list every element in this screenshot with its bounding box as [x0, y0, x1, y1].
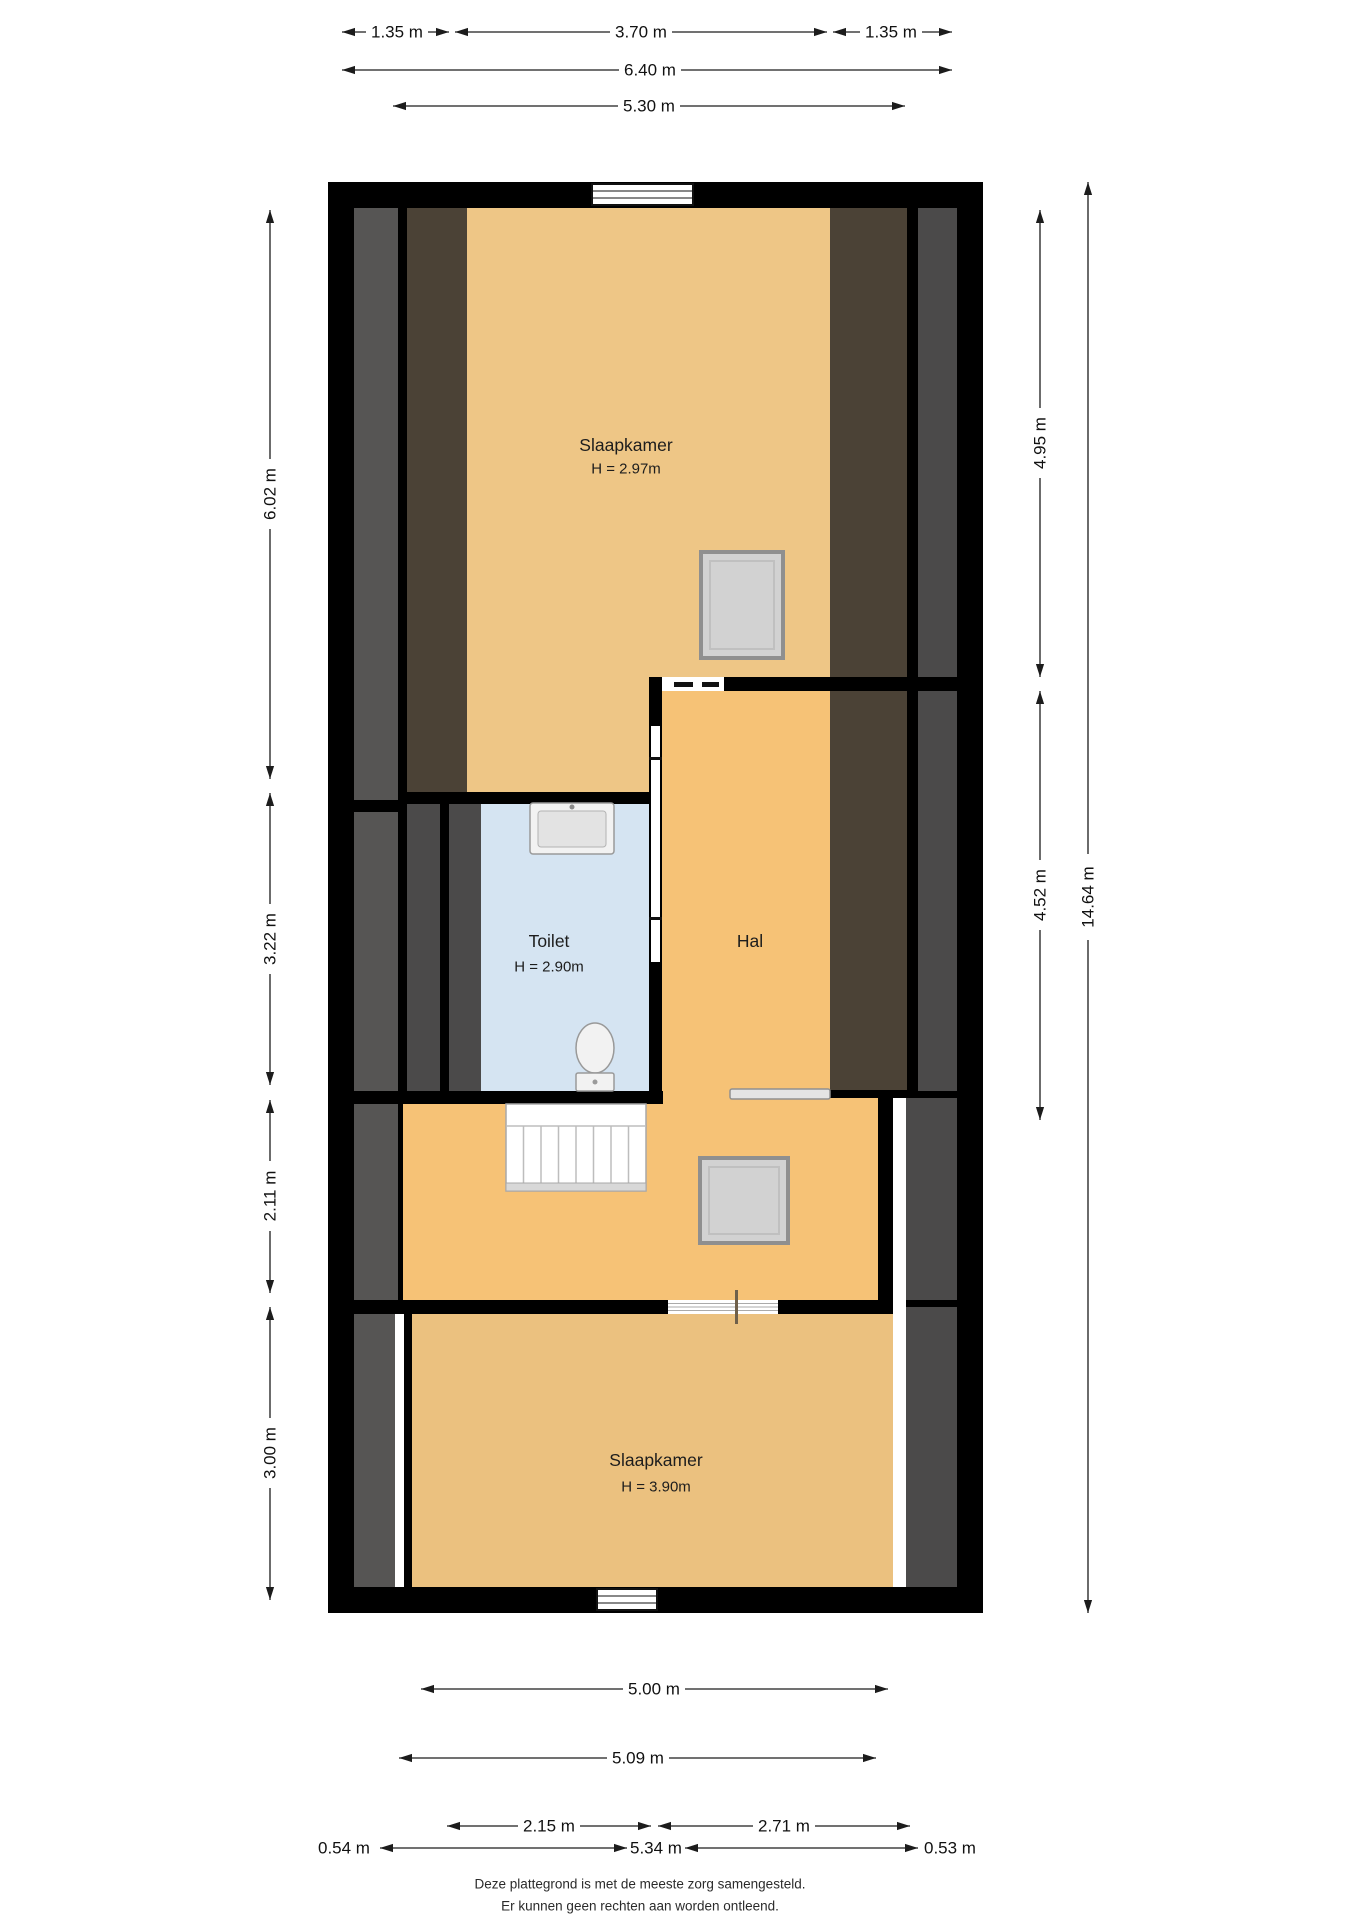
roof-slope-right-up-2	[918, 691, 957, 1091]
sink-tap	[570, 805, 575, 810]
partition-window-tick-1	[649, 757, 662, 760]
floor-plan-canvas: Slaapkamer H = 2.97m Toilet H = 2.90m Ha…	[0, 0, 1358, 1920]
toilet-fixture	[576, 1023, 614, 1091]
window-top-frame	[592, 184, 693, 205]
knee-wall-window-strip-left	[395, 1314, 404, 1587]
bedroom-bottom-height-label: H = 3.90m	[621, 1479, 691, 1496]
dim-left-landing-zone: 2.11 m	[261, 1171, 280, 1222]
dim-top-right-segment: 1.35 m	[865, 23, 917, 42]
dim-top-inner-width: 5.30 m	[623, 97, 675, 116]
dim-left-bedroom-bottom: 3.00 m	[261, 1427, 280, 1479]
passage-dash-2	[702, 682, 719, 687]
dim-bottom-left-offset: 0.54 m	[318, 1839, 370, 1858]
bedroom-top-floor-lobe	[467, 677, 649, 792]
dim-right-hall: 4.52 m	[1031, 869, 1050, 921]
dim-top-total-width: 6.40 m	[624, 61, 676, 80]
partition-window-band	[651, 726, 660, 962]
disclaimer-line-1: Deze plattegrond is met de meeste zorg s…	[475, 1877, 806, 1892]
floor-plan-page: Slaapkamer H = 2.97m Toilet H = 2.90m Ha…	[0, 0, 1358, 1920]
dim-bottom-right-split: 2.71 m	[758, 1817, 810, 1836]
roof-slope-left-1	[354, 208, 398, 800]
bedroom-bottom-label: Slaapkamer	[609, 1450, 703, 1470]
roof-slope-right-low-1	[906, 1098, 957, 1300]
hall-label: Hal	[737, 931, 763, 951]
dim-left-toilet-zone: 3.22 m	[261, 913, 280, 965]
dim-top-row3: 5.30 m	[393, 96, 905, 116]
dim-right-bedroom-top: 4.95 m	[1031, 417, 1050, 469]
toilet-bowl	[576, 1023, 614, 1073]
dim-bottom-right-offset: 0.53 m	[924, 1839, 976, 1858]
stairs	[506, 1104, 646, 1191]
roof-slope-brown-right-1	[830, 208, 907, 677]
skylight-landing	[700, 1158, 788, 1243]
dim-bottom-rows: 5.00 m 5.09 m 2.15 m 2.71 m 0.54 m 5.34 …	[318, 1679, 976, 1858]
hall-floor	[662, 691, 830, 1091]
dim-bottom-outer-width: 5.34 m	[630, 1839, 682, 1858]
dim-left-column: 6.02 m 3.22 m 2.11 m 3.00 m	[260, 210, 280, 1600]
slope-corridor-left	[407, 804, 440, 1091]
dim-bottom-room-width: 5.00 m	[628, 1680, 680, 1699]
dim-left-bedroom-top: 6.02 m	[261, 468, 280, 520]
skylight-bedroom-top	[701, 552, 783, 658]
roof-slope-brown-right-2	[830, 691, 907, 1090]
dim-top-left-segment: 1.35 m	[371, 23, 423, 42]
stair-railing	[730, 1089, 830, 1099]
toilet-button	[593, 1080, 598, 1085]
window-bottom	[597, 1589, 657, 1610]
roof-slope-left-2	[354, 812, 398, 1091]
roof-slope-left-3	[354, 1104, 398, 1300]
roof-slope-right-low-2	[906, 1307, 957, 1587]
bedroom-top-height-label: H = 2.97m	[591, 461, 661, 478]
dim-bottom-inner-width: 5.09 m	[612, 1749, 664, 1768]
open-passage-dashed	[662, 677, 724, 691]
passage-dash-1	[674, 682, 693, 687]
sink-bowl	[538, 811, 606, 847]
toilet-slope-area	[449, 804, 481, 1091]
knee-wall-window-strip-right	[893, 1098, 906, 1587]
stairs-bottom-lip	[506, 1183, 646, 1191]
partition-window-tick-2	[649, 917, 662, 920]
bedroom-top-label: Slaapkamer	[579, 435, 673, 455]
toilet-label: Toilet	[529, 931, 570, 951]
roof-slope-left-4	[354, 1314, 395, 1587]
dim-right-total-height: 14.64 m	[1079, 866, 1098, 927]
skylight-top-frame	[701, 552, 783, 658]
dim-top-row2: 6.40 m	[342, 60, 952, 80]
dim-top-row1: 1.35 m 3.70 m 1.35 m	[342, 22, 952, 42]
window-bottom-frame	[597, 1589, 657, 1610]
plan: Slaapkamer H = 2.97m Toilet H = 2.90m Ha…	[328, 182, 983, 1613]
window-top	[592, 184, 693, 205]
roof-slope-right-up-1	[918, 208, 957, 677]
roof-slope-brown-left	[407, 208, 467, 792]
dim-bottom-left-split: 2.15 m	[523, 1817, 575, 1836]
dim-right-columns: 4.95 m 4.52 m 14.64 m	[1030, 182, 1098, 1613]
dim-top-mid-segment: 3.70 m	[615, 23, 667, 42]
toilet-height-label: H = 2.90m	[514, 959, 584, 976]
sink	[530, 803, 614, 854]
disclaimer: Deze plattegrond is met de meeste zorg s…	[475, 1877, 806, 1914]
skylight-landing-frame	[700, 1158, 788, 1243]
disclaimer-line-2: Er kunnen geen rechten aan worden ontlee…	[501, 1899, 779, 1914]
